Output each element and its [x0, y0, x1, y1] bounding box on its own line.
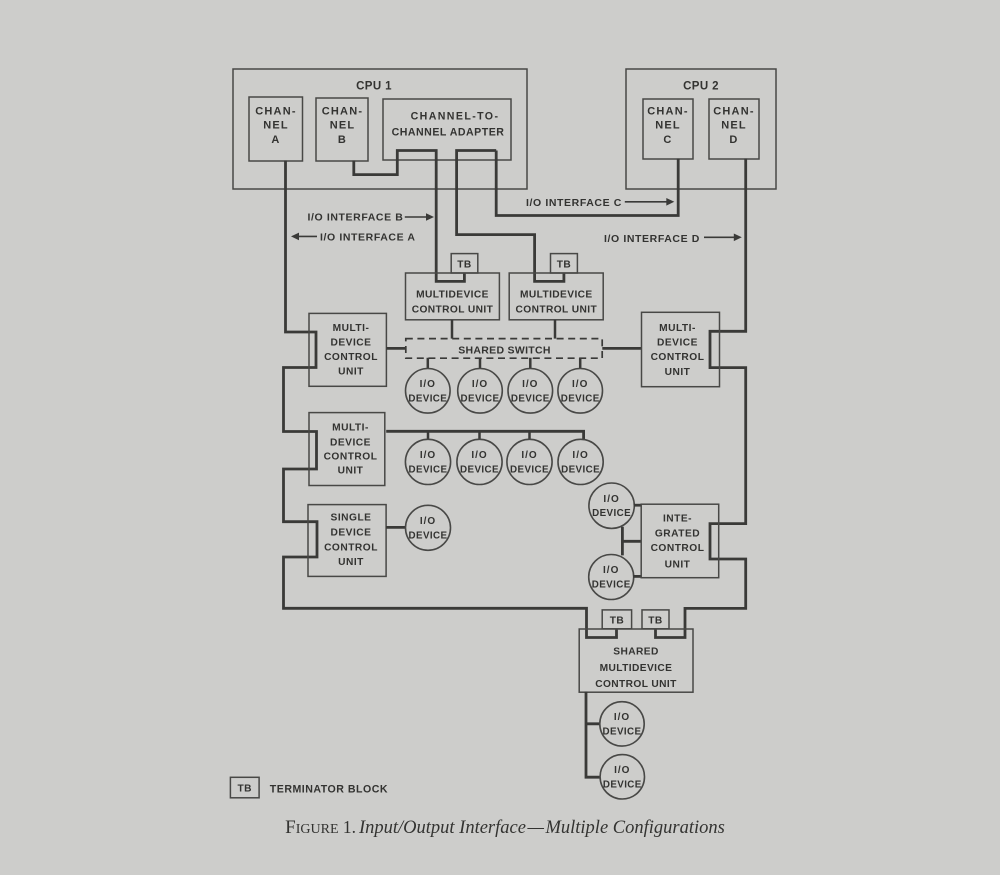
svg-text:I/O: I/O: [614, 712, 630, 723]
svg-text:DEVICE: DEVICE: [331, 337, 372, 348]
svg-text:CHAN-: CHAN-: [647, 105, 688, 117]
svg-text:DEVICE: DEVICE: [603, 726, 642, 737]
svg-text:DEVICE: DEVICE: [510, 464, 549, 475]
svg-text:I/O INTERFACE A: I/O INTERFACE A: [320, 232, 416, 244]
svg-text:TB: TB: [457, 260, 471, 271]
svg-text:I/O: I/O: [420, 516, 436, 527]
svg-text:CONTROL: CONTROL: [324, 452, 378, 463]
svg-text:CONTROL UNIT: CONTROL UNIT: [516, 304, 598, 315]
svg-text:NEL: NEL: [655, 120, 681, 132]
svg-text:TB: TB: [648, 616, 662, 627]
svg-text:CONTROL: CONTROL: [324, 352, 378, 363]
svg-text:MULTIDEVICE: MULTIDEVICE: [520, 289, 593, 300]
svg-text:CHAN-: CHAN-: [713, 105, 754, 117]
svg-text:SHARED: SHARED: [613, 647, 658, 658]
svg-text:CHAN-: CHAN-: [322, 105, 363, 117]
svg-text:CONTROL: CONTROL: [651, 352, 705, 363]
svg-text:DEVICE: DEVICE: [592, 508, 631, 519]
svg-text:DEVICE: DEVICE: [561, 464, 600, 475]
svg-text:CONTROL UNIT: CONTROL UNIT: [595, 679, 677, 690]
svg-text:NEL: NEL: [263, 120, 289, 132]
svg-text:I/O: I/O: [603, 565, 619, 576]
svg-text:GRATED: GRATED: [655, 529, 700, 540]
svg-text:MULTIDEVICE: MULTIDEVICE: [416, 289, 489, 300]
svg-text:MULTI-: MULTI-: [332, 423, 369, 434]
svg-text:C: C: [663, 134, 672, 146]
svg-text:DEVICE: DEVICE: [408, 393, 447, 404]
svg-text:CPU 1: CPU 1: [356, 81, 392, 93]
svg-text:DEVICE: DEVICE: [603, 779, 642, 790]
svg-text:I/O: I/O: [472, 379, 488, 390]
svg-text:DEVICE: DEVICE: [592, 580, 631, 591]
svg-text:I/O: I/O: [572, 450, 588, 461]
svg-text:I/O: I/O: [614, 765, 630, 776]
svg-text:NEL: NEL: [330, 120, 356, 132]
svg-text:UNIT: UNIT: [665, 367, 691, 378]
svg-text:B: B: [338, 134, 347, 146]
svg-text:DEVICE: DEVICE: [461, 393, 500, 404]
svg-text:DEVICE: DEVICE: [561, 393, 600, 404]
svg-text:I/O INTERFACE B: I/O INTERFACE B: [308, 212, 404, 224]
svg-text:UNIT: UNIT: [665, 559, 691, 570]
svg-text:I/O: I/O: [420, 379, 436, 390]
svg-text:CONTROL: CONTROL: [324, 542, 378, 553]
svg-text:I/O INTERFACE C: I/O INTERFACE C: [526, 197, 622, 209]
svg-text:INTE-: INTE-: [663, 514, 692, 525]
svg-text:FIGURE 1. Input/Output Interf: FIGURE 1. Input/Output Interface — Multi…: [285, 817, 725, 838]
svg-text:I/O: I/O: [603, 494, 619, 505]
svg-text:MULTI-: MULTI-: [333, 323, 370, 334]
svg-text:SHARED SWITCH: SHARED SWITCH: [458, 345, 551, 357]
svg-text:DEVICE: DEVICE: [409, 464, 448, 475]
svg-text:UNIT: UNIT: [338, 557, 364, 568]
svg-text:I/O: I/O: [420, 450, 436, 461]
svg-text:DEVICE: DEVICE: [331, 528, 372, 539]
svg-text:I/O: I/O: [522, 379, 538, 390]
svg-text:I/O INTERFACE D: I/O INTERFACE D: [604, 233, 700, 245]
svg-text:NEL: NEL: [721, 120, 747, 132]
svg-text:CHAN-: CHAN-: [255, 105, 296, 117]
svg-text:DEVICE: DEVICE: [657, 338, 698, 349]
svg-text:CONTROL: CONTROL: [651, 543, 705, 554]
svg-text:I/O: I/O: [572, 379, 588, 390]
svg-text:D: D: [729, 134, 738, 146]
svg-text:DEVICE: DEVICE: [330, 437, 371, 448]
svg-text:UNIT: UNIT: [338, 366, 364, 377]
svg-text:MULTIDEVICE: MULTIDEVICE: [600, 663, 673, 674]
svg-text:DEVICE: DEVICE: [460, 464, 499, 475]
svg-text:A: A: [271, 134, 280, 146]
svg-text:CONTROL UNIT: CONTROL UNIT: [412, 304, 494, 315]
svg-text:TB: TB: [557, 260, 571, 271]
svg-text:TB: TB: [238, 783, 252, 794]
svg-text:DEVICE: DEVICE: [409, 530, 448, 541]
svg-text:CHANNEL ADAPTER: CHANNEL ADAPTER: [392, 127, 505, 139]
svg-text:I/O: I/O: [471, 450, 487, 461]
svg-text:UNIT: UNIT: [338, 466, 364, 477]
svg-text:I/O: I/O: [521, 450, 537, 461]
svg-text:TB: TB: [610, 616, 624, 627]
svg-text:CPU 2: CPU 2: [683, 81, 719, 93]
svg-text:CHANNEL-TO-: CHANNEL-TO-: [411, 111, 500, 123]
svg-text:MULTI-: MULTI-: [659, 323, 696, 334]
svg-text:SINGLE: SINGLE: [331, 513, 372, 524]
svg-text:DEVICE: DEVICE: [511, 393, 550, 404]
svg-text:TERMINATOR BLOCK: TERMINATOR BLOCK: [270, 784, 388, 796]
